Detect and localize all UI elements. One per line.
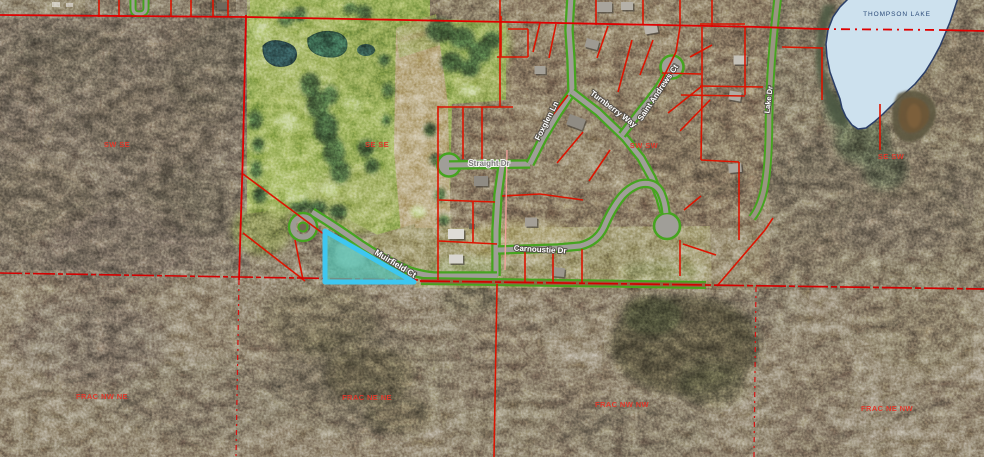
svg-text:SE SE: SE SE [365, 140, 389, 149]
svg-text:FRAC NE NW: FRAC NE NW [861, 404, 913, 413]
svg-text:FRAC NW NE: FRAC NW NE [76, 392, 128, 401]
svg-text:THOMPSON LAKE: THOMPSON LAKE [863, 11, 931, 18]
svg-text:SE SW: SE SW [878, 152, 905, 161]
svg-text:Straight Dr: Straight Dr [468, 159, 509, 168]
svg-text:FRAC NE NE: FRAC NE NE [342, 393, 392, 402]
svg-text:SW SE: SW SE [104, 140, 130, 149]
svg-text:SW SW: SW SW [630, 141, 659, 150]
svg-text:FRAC NW NW: FRAC NW NW [595, 400, 650, 409]
